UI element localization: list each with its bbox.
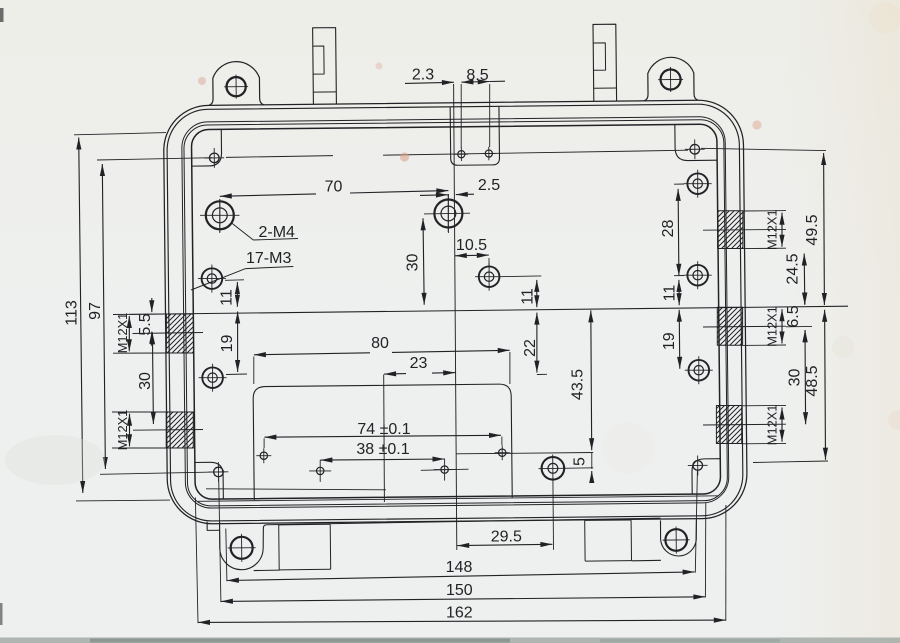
svg-text:8.5: 8.5 xyxy=(466,67,488,84)
svg-text:M12X1: M12X1 xyxy=(764,306,779,347)
svg-text:70: 70 xyxy=(325,178,343,195)
svg-text:38 ±0.1: 38 ±0.1 xyxy=(356,441,409,458)
svg-text:5.5: 5.5 xyxy=(137,313,154,335)
svg-text:23: 23 xyxy=(410,355,428,372)
svg-text:30: 30 xyxy=(137,372,154,390)
svg-text:29.5: 29.5 xyxy=(491,528,522,545)
svg-text:19: 19 xyxy=(219,335,236,353)
svg-text:80: 80 xyxy=(371,335,389,352)
svg-text:M12X1: M12X1 xyxy=(765,405,780,446)
svg-text:43.5: 43.5 xyxy=(570,369,587,400)
svg-text:5: 5 xyxy=(571,457,588,466)
svg-text:30: 30 xyxy=(405,254,422,272)
svg-text:10.5: 10.5 xyxy=(456,237,487,254)
svg-text:150: 150 xyxy=(446,582,473,599)
svg-text:162: 162 xyxy=(446,605,473,622)
svg-text:24.5: 24.5 xyxy=(785,253,802,284)
svg-text:17-M3: 17-M3 xyxy=(246,250,291,267)
svg-text:49.5: 49.5 xyxy=(804,214,821,245)
svg-text:22: 22 xyxy=(522,339,539,357)
svg-text:30: 30 xyxy=(787,369,804,387)
svg-text:97: 97 xyxy=(87,302,104,320)
svg-text:19: 19 xyxy=(661,332,678,350)
svg-text:2.3: 2.3 xyxy=(412,66,434,83)
svg-text:11: 11 xyxy=(219,289,236,306)
svg-text:2-M4: 2-M4 xyxy=(259,224,296,241)
svg-text:28: 28 xyxy=(660,220,677,238)
svg-text:M12X1: M12X1 xyxy=(115,313,130,354)
svg-text:11: 11 xyxy=(662,285,679,302)
svg-text:6.5: 6.5 xyxy=(785,305,802,327)
svg-text:2.5: 2.5 xyxy=(478,177,500,194)
svg-text:M12X1: M12X1 xyxy=(115,410,130,451)
svg-text:48.5: 48.5 xyxy=(804,365,821,396)
svg-text:74 ±0.1: 74 ±0.1 xyxy=(357,421,410,438)
svg-text:11: 11 xyxy=(519,288,536,305)
svg-text:113: 113 xyxy=(64,300,81,326)
svg-text:148: 148 xyxy=(446,559,473,576)
svg-text:M12X1: M12X1 xyxy=(764,209,779,250)
